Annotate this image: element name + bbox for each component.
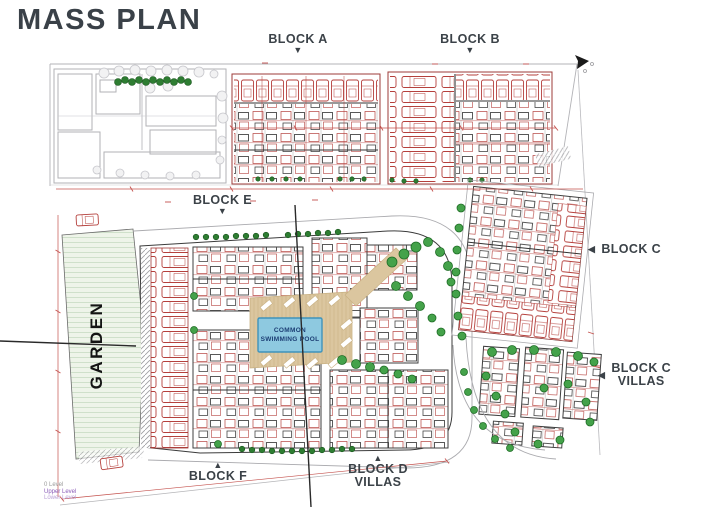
block-f-label: ▲ BLOCK F (185, 461, 251, 483)
car-top-road (76, 214, 99, 226)
garden-label: GARDEN (87, 285, 107, 405)
block-d-villas-label: ▲ BLOCK D VILLAS (340, 454, 416, 489)
block-e-label: BLOCK E ▼ (185, 194, 260, 216)
block-d-villas-text-2: VILLAS (340, 476, 416, 489)
swimming-pool (258, 318, 322, 352)
block-b-text: BLOCK B (440, 32, 500, 46)
block-e-text: BLOCK E (193, 193, 252, 207)
page-title: MASS PLAN (17, 4, 201, 37)
legend-line-3: Lower Level (44, 495, 76, 502)
ramp-hatch (141, 248, 150, 448)
block-e-marker-icon: ▼ (185, 207, 260, 216)
site-plan-drawing: COMMON SWIMMING POOL (0, 0, 705, 528)
block-c-plan (452, 180, 594, 348)
block-c-label: ◀ BLOCK C (588, 243, 661, 256)
north-arrow-icon (575, 55, 594, 73)
block-c-marker-icon: ◀ (588, 245, 595, 254)
block-c-text: BLOCK C (601, 243, 661, 256)
block-a-marker-icon: ▼ (260, 46, 336, 55)
mass-plan-page: COMMON SWIMMING POOL (0, 0, 705, 528)
block-c-villas-marker-icon: ◀ (598, 371, 605, 380)
central-compound: COMMON SWIMMING POOL (134, 216, 472, 468)
level-legend: 0 Level Upper Level Lower Level (44, 482, 76, 502)
block-c-villas-text-2: VILLAS (611, 375, 671, 388)
parking-column (151, 248, 188, 448)
block-a-label: BLOCK A ▼ (260, 33, 336, 55)
cluster-d-villas (330, 370, 448, 448)
block-b-label: BLOCK B ▼ (432, 33, 508, 55)
block-f-text: BLOCK F (189, 469, 247, 483)
cluster-right-of-pool (360, 308, 418, 363)
pool-label-line2: SWIMMING POOL (261, 336, 320, 343)
block-a-plan (232, 74, 380, 184)
existing-buildings-plan (54, 69, 226, 183)
block-a-text: BLOCK A (268, 32, 327, 46)
block-b-marker-icon: ▼ (432, 46, 508, 55)
block-c-villas-label: ◀ BLOCK C VILLAS (598, 362, 671, 388)
